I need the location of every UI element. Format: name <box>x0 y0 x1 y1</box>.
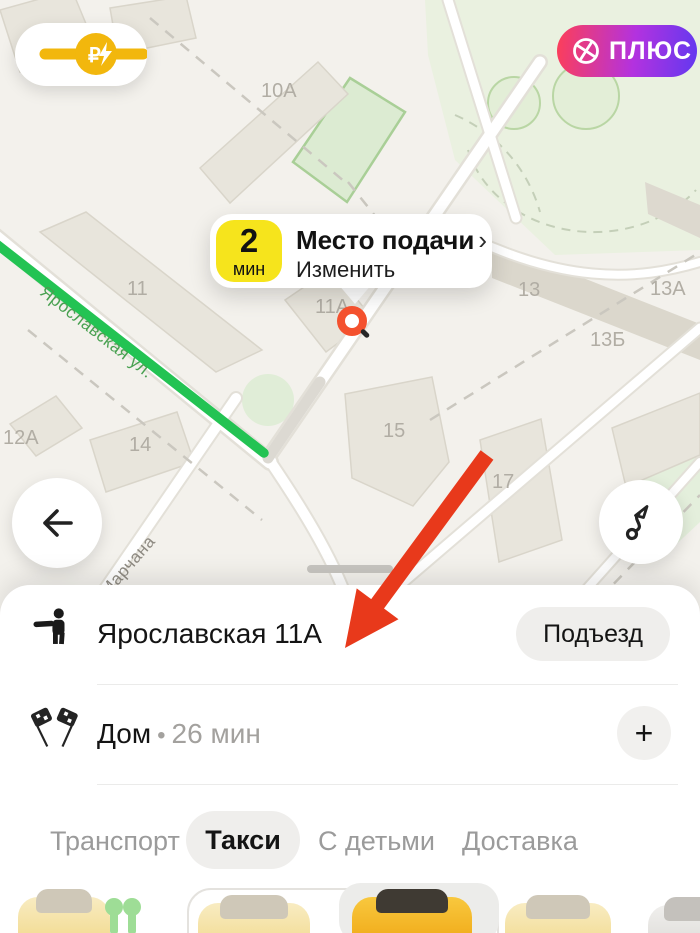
back-arrow-icon <box>35 501 79 545</box>
destination-name: Дом <box>97 718 151 749</box>
entrance-button[interactable]: Подъезд <box>516 607 670 661</box>
surge-price-pill[interactable]: ₽ <box>15 23 147 86</box>
eta-unit: мин <box>233 260 265 278</box>
taxi-selected-icon[interactable] <box>352 885 472 933</box>
destination-text: Дом•26 мин <box>97 718 261 750</box>
building-label: 17 <box>492 471 514 494</box>
building-label: 13 <box>518 279 540 302</box>
tab-transport[interactable]: Транспорт <box>50 826 180 857</box>
dot-separator: • <box>157 722 165 749</box>
yandex-go-screen: 10А 11 11А 12А 13 13А 13Б 14 15 17 Яросл… <box>0 0 700 933</box>
surge-icon: ₽ <box>15 23 147 86</box>
plus-badge[interactable]: ПЛЮС <box>557 25 697 77</box>
car-windshield <box>36 889 91 913</box>
eta-value: 2 <box>240 224 258 257</box>
tab-delivery[interactable]: Доставка <box>462 826 578 857</box>
tab-taxi-active[interactable]: Такси <box>186 811 300 869</box>
service-tabs: Транспорт Такси С детьми Доставка <box>0 811 700 871</box>
building-label: 10А <box>261 80 297 103</box>
pickup-address: Ярославская 11А <box>97 618 322 650</box>
car-windshield <box>526 895 590 919</box>
car-white-icon[interactable] <box>648 893 700 933</box>
divider <box>97 684 678 685</box>
callout-change-link[interactable]: Изменить <box>296 257 395 283</box>
pickup-address-row[interactable]: Ярославская 11А Подъезд <box>0 600 700 670</box>
building-label: 11 <box>127 278 148 301</box>
callout-title: Место подачи› <box>296 225 487 256</box>
sheet-drag-handle[interactable] <box>307 565 393 573</box>
plus-badge-label: ПЛЮС <box>609 37 692 66</box>
scooter-icon[interactable] <box>100 895 144 933</box>
pickup-callout[interactable]: 2 мин Место подачи› Изменить <box>210 214 492 288</box>
eta-badge: 2 мин <box>216 220 282 282</box>
building-label: 13Б <box>590 329 625 352</box>
building-label: 13А <box>650 278 686 301</box>
chevron-right-icon: › <box>478 225 487 255</box>
taxi-pale-icon[interactable] <box>198 891 310 933</box>
building-label: 12А <box>3 427 39 450</box>
bottom-sheet: Ярославская 11А Подъезд <box>0 585 700 933</box>
car-windshield <box>220 895 287 919</box>
callout-title-text: Место подачи <box>296 225 474 255</box>
car-windshield <box>376 889 448 913</box>
destination-row[interactable]: Дом•26 мин + <box>0 700 700 770</box>
add-destination-button[interactable]: + <box>617 706 671 760</box>
taxi-pale-icon[interactable] <box>18 885 110 933</box>
route-options-icon <box>619 500 663 544</box>
plus-logo-icon <box>571 36 601 66</box>
tab-with-kids[interactable]: С детьми <box>318 826 435 857</box>
destination-eta: 26 мин <box>172 718 261 749</box>
building-label: 15 <box>383 420 405 443</box>
person-hailing-icon <box>30 606 76 652</box>
back-button[interactable] <box>12 478 102 568</box>
finish-flags-icon <box>30 706 80 752</box>
divider <box>97 784 678 785</box>
car-windshield <box>664 897 700 921</box>
building-label: 14 <box>129 434 151 457</box>
taxi-pale-icon[interactable] <box>505 891 611 933</box>
route-options-button[interactable] <box>599 480 683 564</box>
